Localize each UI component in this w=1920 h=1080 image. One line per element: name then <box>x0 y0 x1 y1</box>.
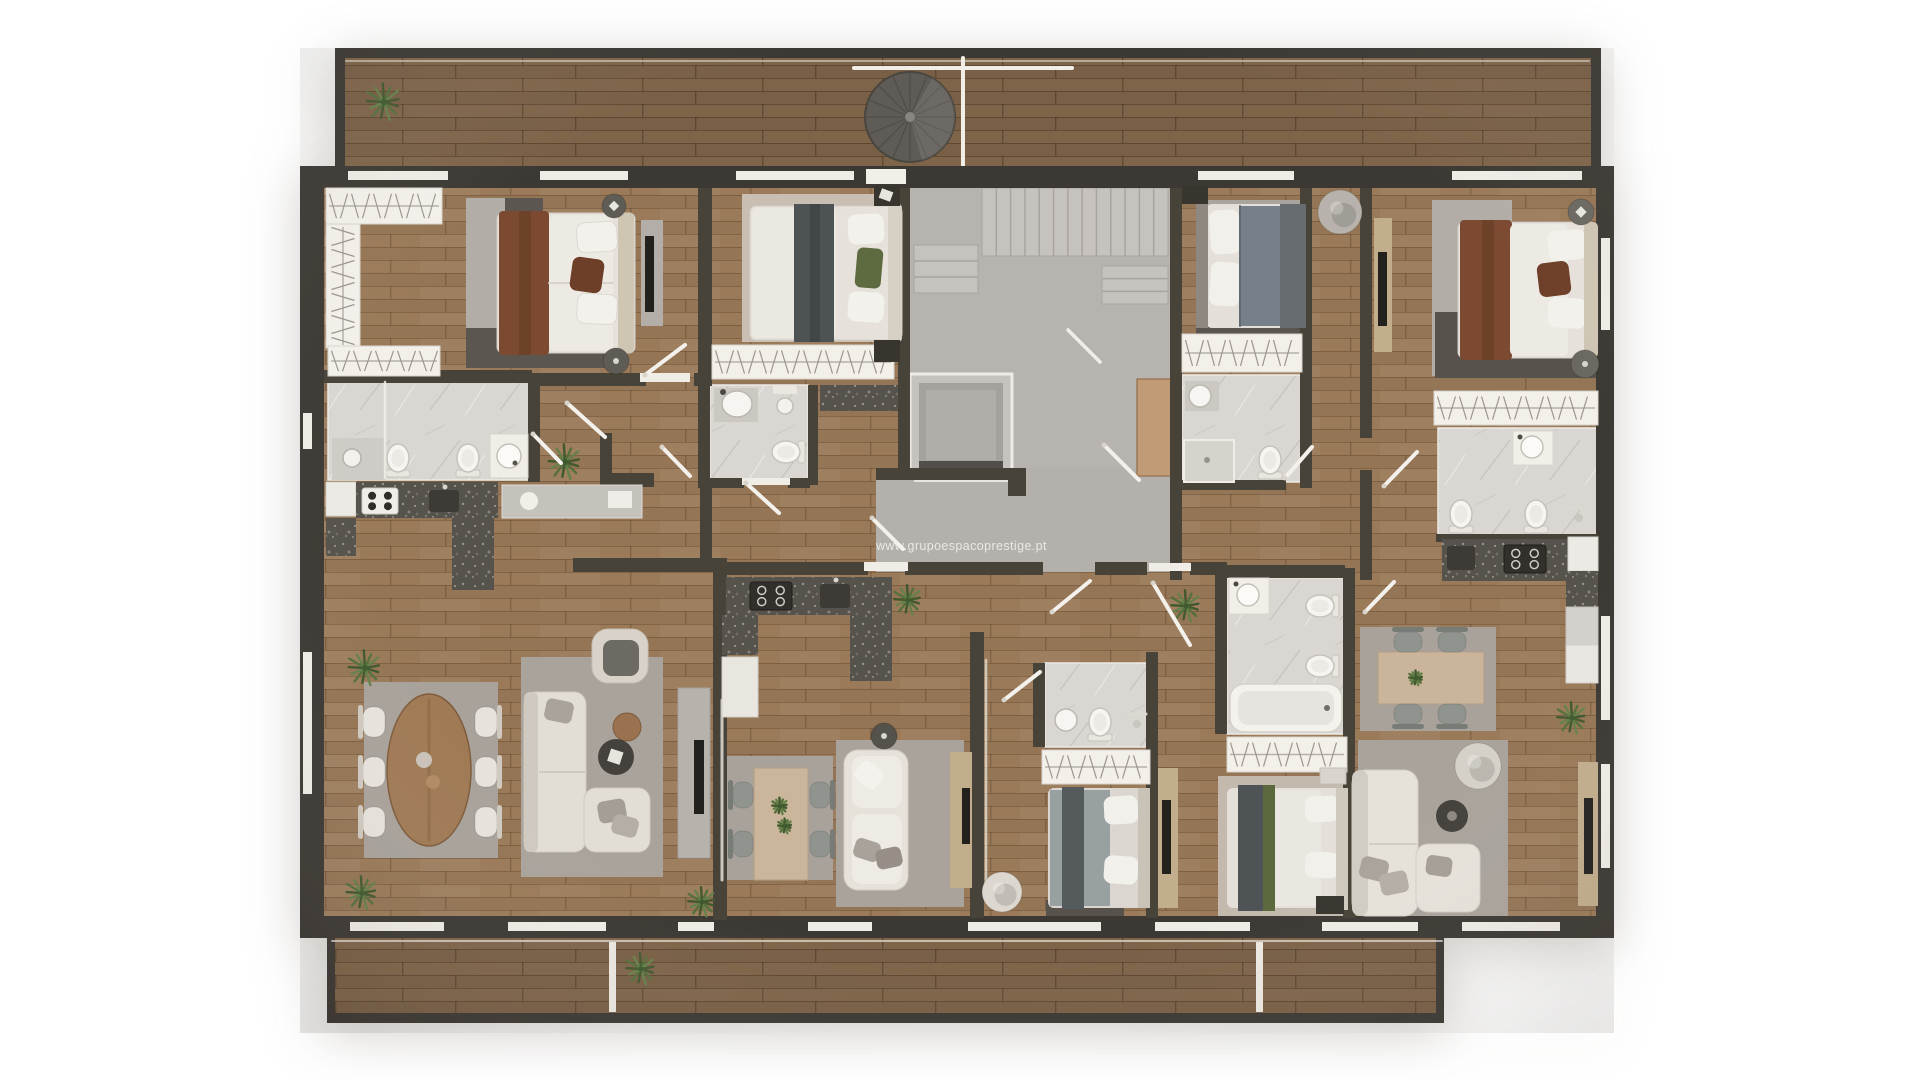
dining-chair <box>358 705 385 739</box>
beanbag-chair <box>982 872 1022 912</box>
toilet <box>772 441 805 463</box>
balcony-divider <box>1256 942 1263 1012</box>
bed-throw-green <box>1263 785 1275 911</box>
cooktop <box>750 582 792 610</box>
bed-throw <box>1280 204 1306 328</box>
window-sill <box>1601 238 1610 330</box>
tv-screen <box>1584 798 1593 874</box>
pouf <box>871 723 897 749</box>
kitchen-counter <box>722 615 758 655</box>
wardrobe <box>328 346 440 376</box>
wall-outer-top <box>300 166 1602 188</box>
dining-chair <box>1436 704 1468 729</box>
window-sill <box>1322 922 1418 931</box>
kitchen-cabinet-gray <box>1566 607 1598 645</box>
toilet <box>456 444 480 477</box>
window-sill <box>303 413 312 449</box>
dining-chair <box>475 805 502 839</box>
tv-screen <box>962 788 970 844</box>
kitchen-sink <box>820 584 850 608</box>
nightstand <box>874 340 900 362</box>
pillow <box>1103 855 1139 885</box>
dining-chair <box>358 805 385 839</box>
pillow <box>847 291 885 323</box>
laundry-counter <box>820 385 898 411</box>
faucet <box>834 578 839 583</box>
dining-chair <box>358 755 385 789</box>
bed-headboard <box>888 204 902 342</box>
wall <box>528 373 646 386</box>
side-table <box>613 713 641 741</box>
wardrobe <box>1434 391 1598 425</box>
wardrobe <box>1227 737 1347 772</box>
door-threshold <box>864 562 908 571</box>
dining-chair <box>728 829 753 859</box>
pillow <box>847 213 885 245</box>
window-sill <box>1198 171 1294 180</box>
bed-throw-fold <box>519 211 531 355</box>
armchair-seat <box>603 640 639 676</box>
shower-head <box>1133 720 1141 728</box>
bed-headboard <box>1138 788 1150 908</box>
tv-screen <box>1162 800 1171 874</box>
kitchen-counter <box>452 518 494 590</box>
balcony-bottom-frame-right <box>1436 938 1444 1023</box>
wall <box>905 562 1043 575</box>
cooktop <box>362 488 398 514</box>
dining-chair <box>1392 627 1424 652</box>
cushion-green <box>854 247 883 289</box>
toilet <box>1449 500 1473 533</box>
cushion <box>569 256 605 294</box>
bed-throw-fold <box>1482 220 1494 360</box>
window-sill <box>303 652 312 794</box>
bidet <box>1524 500 1548 533</box>
hall-bench <box>1137 379 1171 476</box>
dining-table <box>1378 652 1484 704</box>
spiral-staircase <box>865 72 955 162</box>
floor-plan-canvas: www.grupoespacoprestige.pt <box>0 0 1920 1080</box>
pouf <box>602 194 626 218</box>
sink <box>722 391 752 417</box>
balcony-top-floor <box>344 57 1591 167</box>
kitchen-sink <box>429 490 459 512</box>
stair-steps <box>1102 266 1168 304</box>
pillow <box>1209 209 1242 255</box>
bed-throw <box>1062 787 1084 909</box>
wall <box>970 632 984 918</box>
sink <box>1055 709 1077 731</box>
window-sill <box>1601 616 1610 720</box>
washbasin <box>497 444 521 468</box>
nightstand <box>1316 896 1344 914</box>
pillow <box>1425 854 1454 877</box>
dining-chair <box>1436 627 1468 652</box>
window-sill <box>968 922 1101 931</box>
wall <box>727 562 868 575</box>
wall <box>808 385 818 485</box>
beanbag-chair <box>1455 743 1501 789</box>
sofa-back <box>524 692 538 852</box>
wall <box>700 482 712 560</box>
wall <box>573 558 715 572</box>
bed-throw-fold <box>810 204 820 342</box>
beanbag-chair <box>1318 190 1362 234</box>
window-sill <box>1601 764 1610 868</box>
bed-headboard <box>618 213 634 353</box>
bed-headboard <box>1584 222 1598 358</box>
sink <box>343 449 361 467</box>
kitchen-cabinet <box>1566 645 1598 683</box>
kitchen-cabinet-dark <box>326 518 356 556</box>
decor-bowl <box>426 775 440 789</box>
balcony-divider <box>609 942 616 1012</box>
wall <box>1170 188 1182 580</box>
pillow <box>576 221 618 254</box>
wall <box>713 558 727 920</box>
faucet <box>443 485 448 490</box>
pillow <box>1304 851 1339 879</box>
window-sill <box>348 171 448 180</box>
sink <box>1237 584 1259 606</box>
balcony-door-sill <box>866 169 906 184</box>
nightstand <box>1182 186 1208 204</box>
toilet <box>1258 446 1282 479</box>
bidet <box>1306 655 1339 677</box>
faucet <box>1518 435 1523 440</box>
pouf <box>1568 199 1594 225</box>
bed-throw <box>1238 785 1266 911</box>
tv-screen <box>694 740 704 814</box>
window-sill <box>678 922 714 931</box>
balcony-bottom-frame-left <box>327 938 335 1023</box>
dining-chair <box>475 755 502 789</box>
balcony-top-rim-right <box>1591 48 1601 167</box>
wall <box>1215 572 1227 734</box>
window-sill <box>508 922 606 931</box>
wall <box>528 380 540 482</box>
pillow <box>1547 229 1587 262</box>
wall <box>698 188 712 380</box>
wardrobe <box>1182 334 1302 372</box>
door-threshold <box>1149 563 1191 571</box>
toilet <box>386 444 410 477</box>
window-sill <box>736 171 854 180</box>
wall <box>1360 188 1372 438</box>
pouf <box>1571 350 1599 378</box>
wall <box>1095 562 1147 575</box>
window-sill <box>1452 171 1582 180</box>
kitchen-cabinet <box>1568 537 1598 571</box>
faucet <box>513 461 518 466</box>
watermark-text: www.grupoespacoprestige.pt <box>876 539 1047 553</box>
stair-flight <box>982 188 1168 256</box>
dining-chair <box>1392 704 1424 729</box>
wardrobe <box>326 188 442 224</box>
decor-plate <box>520 492 538 510</box>
wall <box>600 433 612 479</box>
wall <box>876 468 1010 480</box>
balcony-bottom-frame <box>327 1013 1443 1023</box>
tv-screen <box>1378 252 1387 326</box>
balcony-top-rim <box>335 48 1601 58</box>
small-basin <box>777 398 793 414</box>
wardrobe <box>712 345 894 379</box>
decor-bowl <box>416 752 432 768</box>
balcony-top-rim-left <box>335 48 345 167</box>
pillow <box>576 293 618 325</box>
balcony-bottom-floor <box>332 938 1442 1014</box>
faucet <box>1234 582 1239 587</box>
tub-faucet <box>1324 705 1330 711</box>
wall <box>788 478 810 488</box>
stair-steps <box>914 245 978 293</box>
sink <box>1521 436 1543 458</box>
decor-box <box>608 491 632 508</box>
toilet <box>1088 708 1112 741</box>
wall <box>1008 468 1026 496</box>
kitchen-cabinet <box>326 482 356 516</box>
sink <box>1189 385 1211 407</box>
pillow <box>1547 297 1587 330</box>
bed-headboard <box>1196 202 1208 328</box>
sofa-back <box>1352 770 1368 916</box>
wall <box>1190 562 1227 575</box>
decor-bowl <box>1447 811 1457 821</box>
kitchen-counter <box>850 615 892 681</box>
pillow <box>1209 261 1242 307</box>
elevator-cab-floor <box>926 390 996 460</box>
window-sill <box>1155 922 1250 931</box>
tv-screen <box>645 236 654 312</box>
dining-chair <box>728 780 753 810</box>
drain <box>1204 457 1210 463</box>
wall <box>1227 565 1345 578</box>
kitchen-cabinet <box>722 657 758 717</box>
bathtub-inner <box>1238 691 1334 725</box>
shower-head <box>1575 514 1583 522</box>
shelf <box>773 386 797 394</box>
kitchen-sink <box>1447 546 1475 570</box>
pillow <box>1103 795 1138 825</box>
cushion <box>1536 260 1572 298</box>
window-sill <box>350 922 444 931</box>
pouf <box>603 348 629 374</box>
nightstand <box>1320 768 1346 784</box>
bed-headboard <box>1336 788 1348 910</box>
dining-chair <box>810 780 835 810</box>
sofa-chaise <box>1416 844 1480 912</box>
dining-chair <box>475 705 502 739</box>
wall <box>1360 470 1372 580</box>
faucet <box>720 389 726 395</box>
elevator-door <box>919 461 1003 468</box>
kitchen-counter <box>1566 571 1598 607</box>
wardrobe <box>1042 750 1150 784</box>
dining-chair <box>810 829 835 859</box>
wall-outer-left <box>300 166 324 938</box>
cooktop <box>1504 545 1546 573</box>
toilet <box>1306 595 1339 617</box>
wall <box>698 380 710 482</box>
window-sill <box>1462 922 1560 931</box>
pillow <box>1304 795 1339 823</box>
window-sill <box>808 922 872 931</box>
window-sill <box>540 171 628 180</box>
wardrobe <box>326 224 360 348</box>
